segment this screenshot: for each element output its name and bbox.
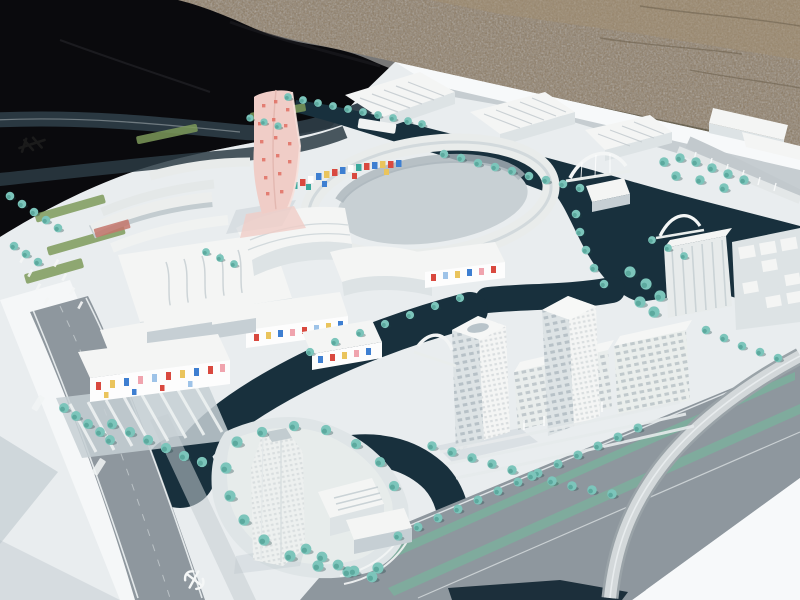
courtyard-block-cluster	[732, 228, 800, 330]
office-tower-1	[452, 316, 510, 452]
office-tower-2	[542, 296, 600, 436]
ribbed-slab-building	[664, 228, 732, 318]
photo-architectural-model: Architectural scale model of a canal-sid…	[0, 0, 800, 600]
